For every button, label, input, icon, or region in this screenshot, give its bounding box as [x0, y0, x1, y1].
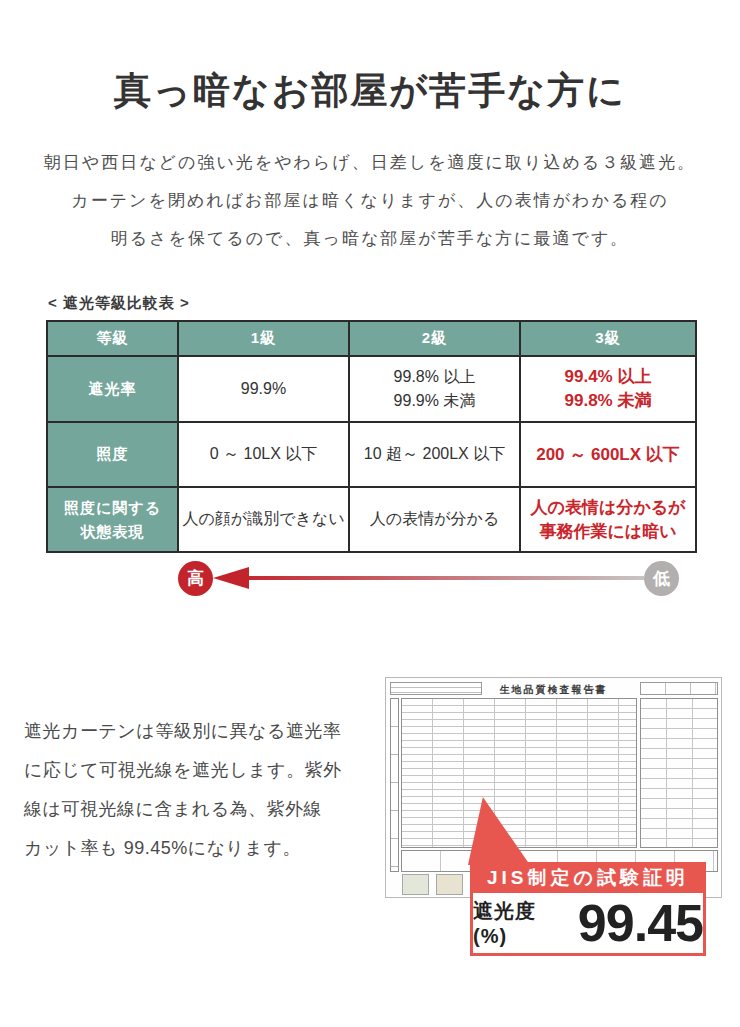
cell-rate-class1: 99.9%	[179, 357, 348, 421]
table-header-class3: 3級	[521, 322, 695, 355]
intro-line-3: 明るさを保てるので、真っ暗な部屋が苦手な方に最適です。	[0, 220, 740, 258]
scale-low-badge: 低	[644, 561, 679, 596]
table-header-class2: 2級	[350, 322, 519, 355]
report-side-strip	[390, 698, 399, 872]
intro-line-1: 朝日や西日などの強い光をやわらげ、日差しを適度に取り込める３級遮光。	[0, 144, 740, 182]
cell-state-class2: 人の表情が分かる	[350, 488, 519, 551]
fabric-swatch-1	[402, 874, 429, 895]
cell-rate-class2: 99.8% 以上 99.9% 未満	[350, 357, 519, 421]
scale-high-badge: 高	[178, 561, 213, 596]
scale-arrow-head-icon	[213, 567, 249, 589]
rowhead-shading-rate: 遮光率	[48, 357, 177, 421]
jis-certificate-badge: JIS制定の試験証明 遮光度(%) 99.45	[470, 862, 706, 956]
report-main-grid	[401, 698, 637, 848]
page-title: 真っ暗なお部屋が苦手な方に	[0, 66, 740, 116]
table-header-grade: 等級	[48, 322, 177, 355]
badge-body: 遮光度(%) 99.45	[470, 893, 706, 956]
rowhead-state-description: 照度に関する 状態表現	[48, 488, 177, 551]
badge-title: JIS制定の試験証明	[470, 862, 706, 893]
intro-line-2: カーテンを閉めればお部屋は暗くなりますが、人の表情がわかる程の	[0, 182, 740, 220]
cell-state-class3: 人の表情は分かるが 事務作業には暗い	[521, 488, 695, 551]
scale-arrow-line	[238, 576, 644, 580]
comparison-table: 等級 1級 2級 3級 遮光率 99.9% 99.8% 以上 99.9% 未満 …	[46, 320, 697, 553]
cell-lux-class2: 10 超～ 200LX 以下	[350, 423, 519, 486]
intro-text: 朝日や西日などの強い光をやわらげ、日差しを適度に取り込める３級遮光。 カーテンを…	[0, 144, 740, 258]
comparison-table-label: < 遮光等級比較表 >	[48, 294, 190, 313]
report-header-right	[640, 682, 718, 695]
rowhead-illuminance: 照度	[48, 423, 177, 486]
cell-lux-class1: 0 ～ 10LX 以下	[179, 423, 348, 486]
shading-rate-value: 99.45	[578, 893, 703, 953]
description-text: 遮光カーテンは等級別に異なる遮光率 に応じて可視光線を遮光します。紫外 線は可視…	[24, 712, 384, 868]
cell-lux-class3: 200 ～ 600LX 以下	[521, 423, 695, 486]
table-header-class1: 1級	[179, 322, 348, 355]
report-right-grid	[640, 698, 718, 848]
page: 真っ暗なお部屋が苦手な方に 朝日や西日などの強い光をやわらげ、日差しを適度に取り…	[0, 0, 740, 1027]
shading-rate-label: 遮光度(%)	[473, 898, 564, 948]
fabric-swatch-2	[436, 874, 463, 895]
cell-rate-class3: 99.4% 以上 99.8% 未満	[521, 357, 695, 421]
cell-state-class1: 人の顔が識別できない	[179, 488, 348, 551]
